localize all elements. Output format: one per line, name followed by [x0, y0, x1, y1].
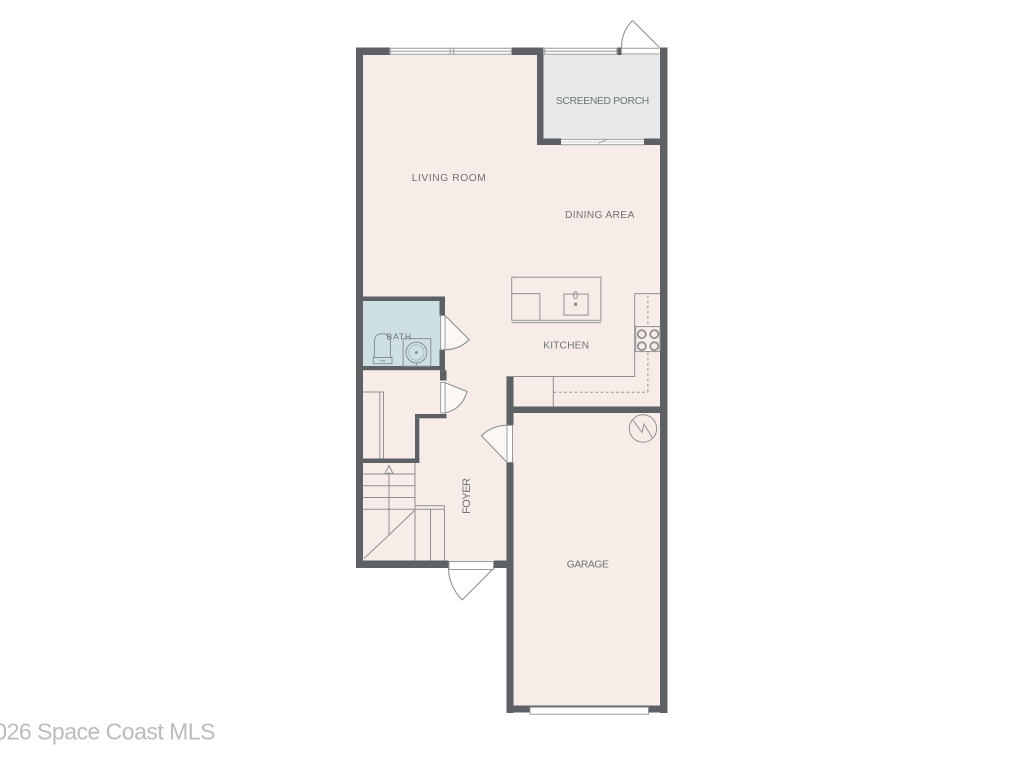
svg-text:LIVING ROOM: LIVING ROOM [412, 173, 487, 184]
svg-text:FOYER: FOYER [461, 478, 473, 514]
svg-text:BATH: BATH [386, 331, 411, 341]
svg-text:GARAGE: GARAGE [567, 560, 609, 571]
svg-text:KITCHEN: KITCHEN [543, 341, 589, 352]
svg-text:SCREENED PORCH: SCREENED PORCH [556, 96, 649, 107]
svg-text:2026 Space Coast MLS: 2026 Space Coast MLS [0, 719, 215, 745]
svg-text:DINING AREA: DINING AREA [565, 210, 635, 221]
